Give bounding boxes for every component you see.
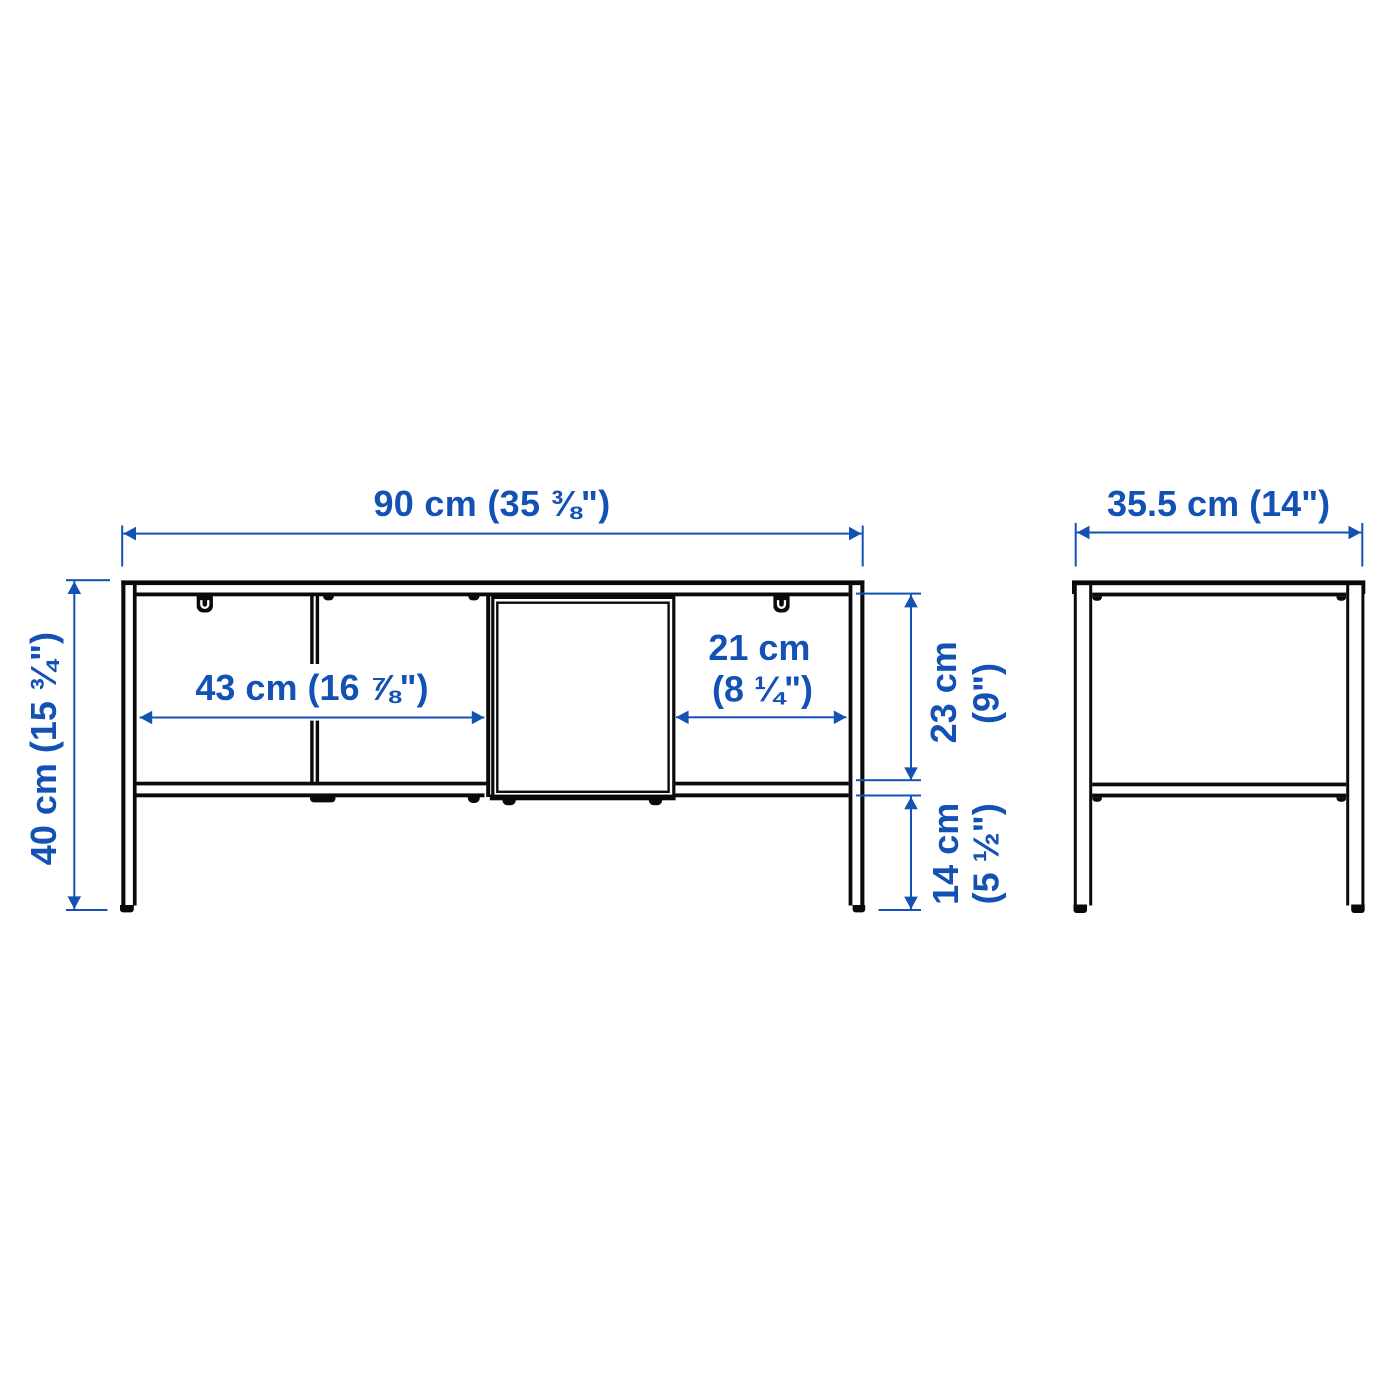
svg-text:90 cm (35 ⅜"): 90 cm (35 ⅜") [373,483,610,524]
svg-text:23 cm: 23 cm [923,641,964,743]
svg-text:14 cm: 14 cm [925,803,966,905]
svg-text:(5 ½"): (5 ½") [965,803,1006,904]
svg-text:(8 ¼"): (8 ¼") [712,669,813,710]
svg-text:35.5 cm (14"): 35.5 cm (14") [1107,483,1330,524]
svg-text:21 cm: 21 cm [708,627,810,668]
svg-text:(9"): (9") [965,663,1006,724]
svg-text:43 cm (16 ⅞"): 43 cm (16 ⅞") [195,667,428,708]
svg-text:40 cm (15 ¾"): 40 cm (15 ¾") [23,632,64,865]
